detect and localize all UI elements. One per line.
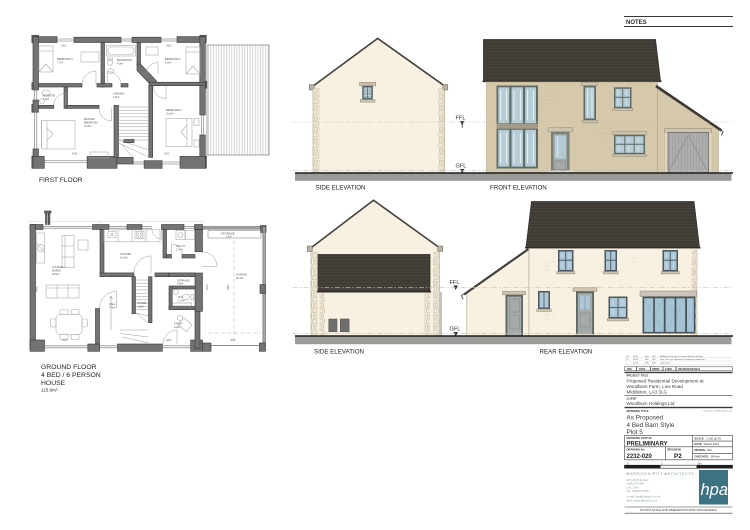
svg-text:SCALE : 1:100 @ A3: SCALE : 1:100 @ A3: [694, 437, 721, 441]
svg-text:STORE: STORE: [138, 301, 147, 305]
svg-text:Woodburn Holdings Ltd: Woodburn Holdings Ltd: [627, 401, 675, 406]
svg-text:4 Bed Barn Style: 4 Bed Barn Style: [627, 422, 675, 429]
svg-text:P2: P2: [674, 453, 682, 460]
svg-text:Tel: 01524 61476: Tel: 01524 61476: [627, 489, 650, 493]
svg-text:HARRISON PITT ARCHITECTS: HARRISON PITT ARCHITECTS: [627, 471, 695, 476]
svg-text:18.4m²: 18.4m²: [236, 277, 244, 280]
svg-text:Middleton, LA3 3LG: Middleton, LA3 3LG: [627, 390, 668, 395]
svg-text:5515: 5515: [206, 284, 209, 290]
svg-text:3600: 3600: [166, 44, 172, 47]
svg-text:FFL: FFL: [450, 280, 460, 286]
svg-text:2602: 2602: [61, 44, 67, 47]
svg-text:BEDROOM 2: BEDROOM 2: [166, 108, 182, 112]
svg-text:10.4m²: 10.4m²: [120, 257, 128, 260]
svg-text:DRAWN : MH: DRAWN : MH: [694, 448, 711, 452]
svg-text:PROJECT TITLE: PROJECT TITLE: [627, 374, 649, 378]
svg-text:Web: www.hparch.co.uk: Web: www.hparch.co.uk: [627, 498, 659, 502]
svg-text:REVISION DETAILS: REVISION DETAILS: [678, 368, 701, 371]
svg-text:3000: 3000: [230, 339, 236, 342]
svg-text:DATE : March 2021: DATE : March 2021: [694, 442, 719, 446]
svg-text:W.C: W.C: [178, 295, 183, 299]
svg-text:DRWN: DRWN: [652, 368, 660, 371]
svg-text:DRAWING No: DRAWING No: [627, 448, 645, 452]
svg-text:5m: 5m: [698, 461, 702, 465]
svg-text:STUDY: STUDY: [174, 322, 183, 326]
svg-text:1.7m²: 1.7m²: [178, 299, 185, 302]
svg-text:SIDE ELEVATION: SIDE ELEVATION: [316, 185, 366, 192]
svg-text:GFL: GFL: [456, 164, 467, 170]
svg-text:UTILITY: UTILITY: [176, 244, 186, 248]
svg-text:hpa: hpa: [701, 481, 729, 499]
svg-text:4.0m²: 4.0m²: [117, 63, 124, 66]
svg-text:GROUND FLOOR: GROUND FLOOR: [41, 364, 97, 371]
svg-text:4.3m²: 4.3m²: [113, 96, 120, 99]
svg-text:First Issue for comment & plan: First Issue for comment & planning submi…: [660, 358, 706, 361]
svg-text:FIRST FLOOR: FIRST FLOOR: [39, 177, 83, 184]
svg-text:CHECKED : SW/mh: CHECKED : SW/mh: [694, 455, 720, 459]
svg-text:MASTER: MASTER: [84, 117, 95, 121]
svg-text:6000: 6000: [227, 284, 230, 290]
svg-text:SIDE ELEVATION: SIDE ELEVATION: [314, 349, 364, 356]
svg-text:EN-SUITE: EN-SUITE: [43, 94, 55, 98]
svg-text:DATE: DATE: [639, 368, 646, 371]
svg-text:Plot 5: Plot 5: [627, 429, 644, 436]
svg-text:2.7m²: 2.7m²: [176, 249, 183, 252]
svg-text:0.6m²: 0.6m²: [226, 235, 232, 238]
svg-text:REVISION: REVISION: [667, 448, 680, 452]
svg-text:HOUSE: HOUSE: [41, 380, 66, 387]
svg-text:DINING: DINING: [52, 269, 61, 273]
svg-text:BEDROOM 3: BEDROOM 3: [165, 57, 181, 61]
svg-text:FRONT ELEVATION: FRONT ELEVATION: [490, 185, 547, 192]
svg-text:GARAGE: GARAGE: [236, 273, 247, 277]
svg-text:REAR ELEVATION: REAR ELEVATION: [540, 349, 593, 356]
svg-text:BEDROOM 4: BEDROOM 4: [57, 57, 73, 61]
svg-text:7.7m²: 7.7m²: [57, 62, 64, 65]
svg-text:3425: 3425: [164, 153, 170, 156]
svg-text:1.3m²: 1.3m²: [138, 306, 145, 309]
svg-text:Additional Garage & revised ki: Additional Garage & revised kitchen wind…: [660, 355, 703, 358]
svg-text:2630: 2630: [166, 339, 172, 342]
svg-text:CLIENT: CLIENT: [627, 396, 637, 400]
svg-text:HALL: HALL: [109, 302, 116, 306]
svg-text:CHKD: CHKD: [665, 368, 672, 371]
svg-text:FFL: FFL: [456, 116, 466, 122]
svg-text:11.9m²: 11.9m²: [84, 125, 92, 128]
svg-text:BEDROOM: BEDROOM: [84, 121, 97, 125]
svg-text:7.4m²: 7.4m²: [109, 307, 116, 310]
svg-text:As Proposed: As Proposed: [627, 415, 664, 422]
svg-text:LANDING: LANDING: [113, 92, 125, 96]
svg-text:Draft issue: Draft issue: [660, 362, 671, 365]
svg-text:4025: 4025: [72, 153, 78, 156]
svg-text:DRAWING TITLE: DRAWING TITLE: [627, 409, 649, 413]
svg-text:6.0m²: 6.0m²: [165, 62, 172, 65]
svg-text:LOUNGE /: LOUNGE /: [52, 265, 65, 269]
svg-text:REV: REV: [627, 368, 632, 371]
svg-text:4 BED / 6 PERSON: 4 BED / 6 PERSON: [41, 372, 101, 379]
svg-text:0.8m²: 0.8m²: [177, 283, 184, 286]
svg-text:BATHROOM: BATHROOM: [117, 58, 132, 62]
svg-text:NOTES: NOTES: [626, 20, 647, 26]
svg-text:© Harrison & Pitt Architects L: © Harrison & Pitt Architects Ltd: [702, 409, 733, 412]
svg-text:1.9m²: 1.9m²: [43, 98, 50, 101]
svg-text:KITCHEN: KITCHEN: [120, 252, 132, 256]
svg-text:Proposed Residential Developme: Proposed Residential Development at: [627, 379, 705, 384]
svg-text:PRELIMINARY: PRELIMINARY: [627, 441, 668, 447]
svg-text:11.0m²: 11.0m²: [166, 113, 174, 116]
svg-text:STORAGE: STORAGE: [221, 231, 235, 235]
svg-text:GFL: GFL: [450, 327, 461, 333]
svg-text:Woodburn Farm, Low Road: Woodburn Farm, Low Road: [627, 384, 684, 389]
svg-text:6.4m²: 6.4m²: [174, 326, 181, 329]
svg-text:3200: 3200: [62, 339, 68, 342]
svg-text:115.6m²: 115.6m²: [41, 388, 58, 393]
svg-text:2232-020: 2232-020: [627, 454, 653, 460]
svg-text:20.9m²: 20.9m²: [52, 273, 60, 276]
svg-text:6596: 6596: [36, 286, 39, 292]
svg-text:DO NOT SCALE SITE DIMENSIONS F: DO NOT SCALE SITE DIMENSIONS FROM THIS D…: [640, 508, 717, 512]
svg-text:DRAWING STATUS: DRAWING STATUS: [627, 436, 652, 440]
